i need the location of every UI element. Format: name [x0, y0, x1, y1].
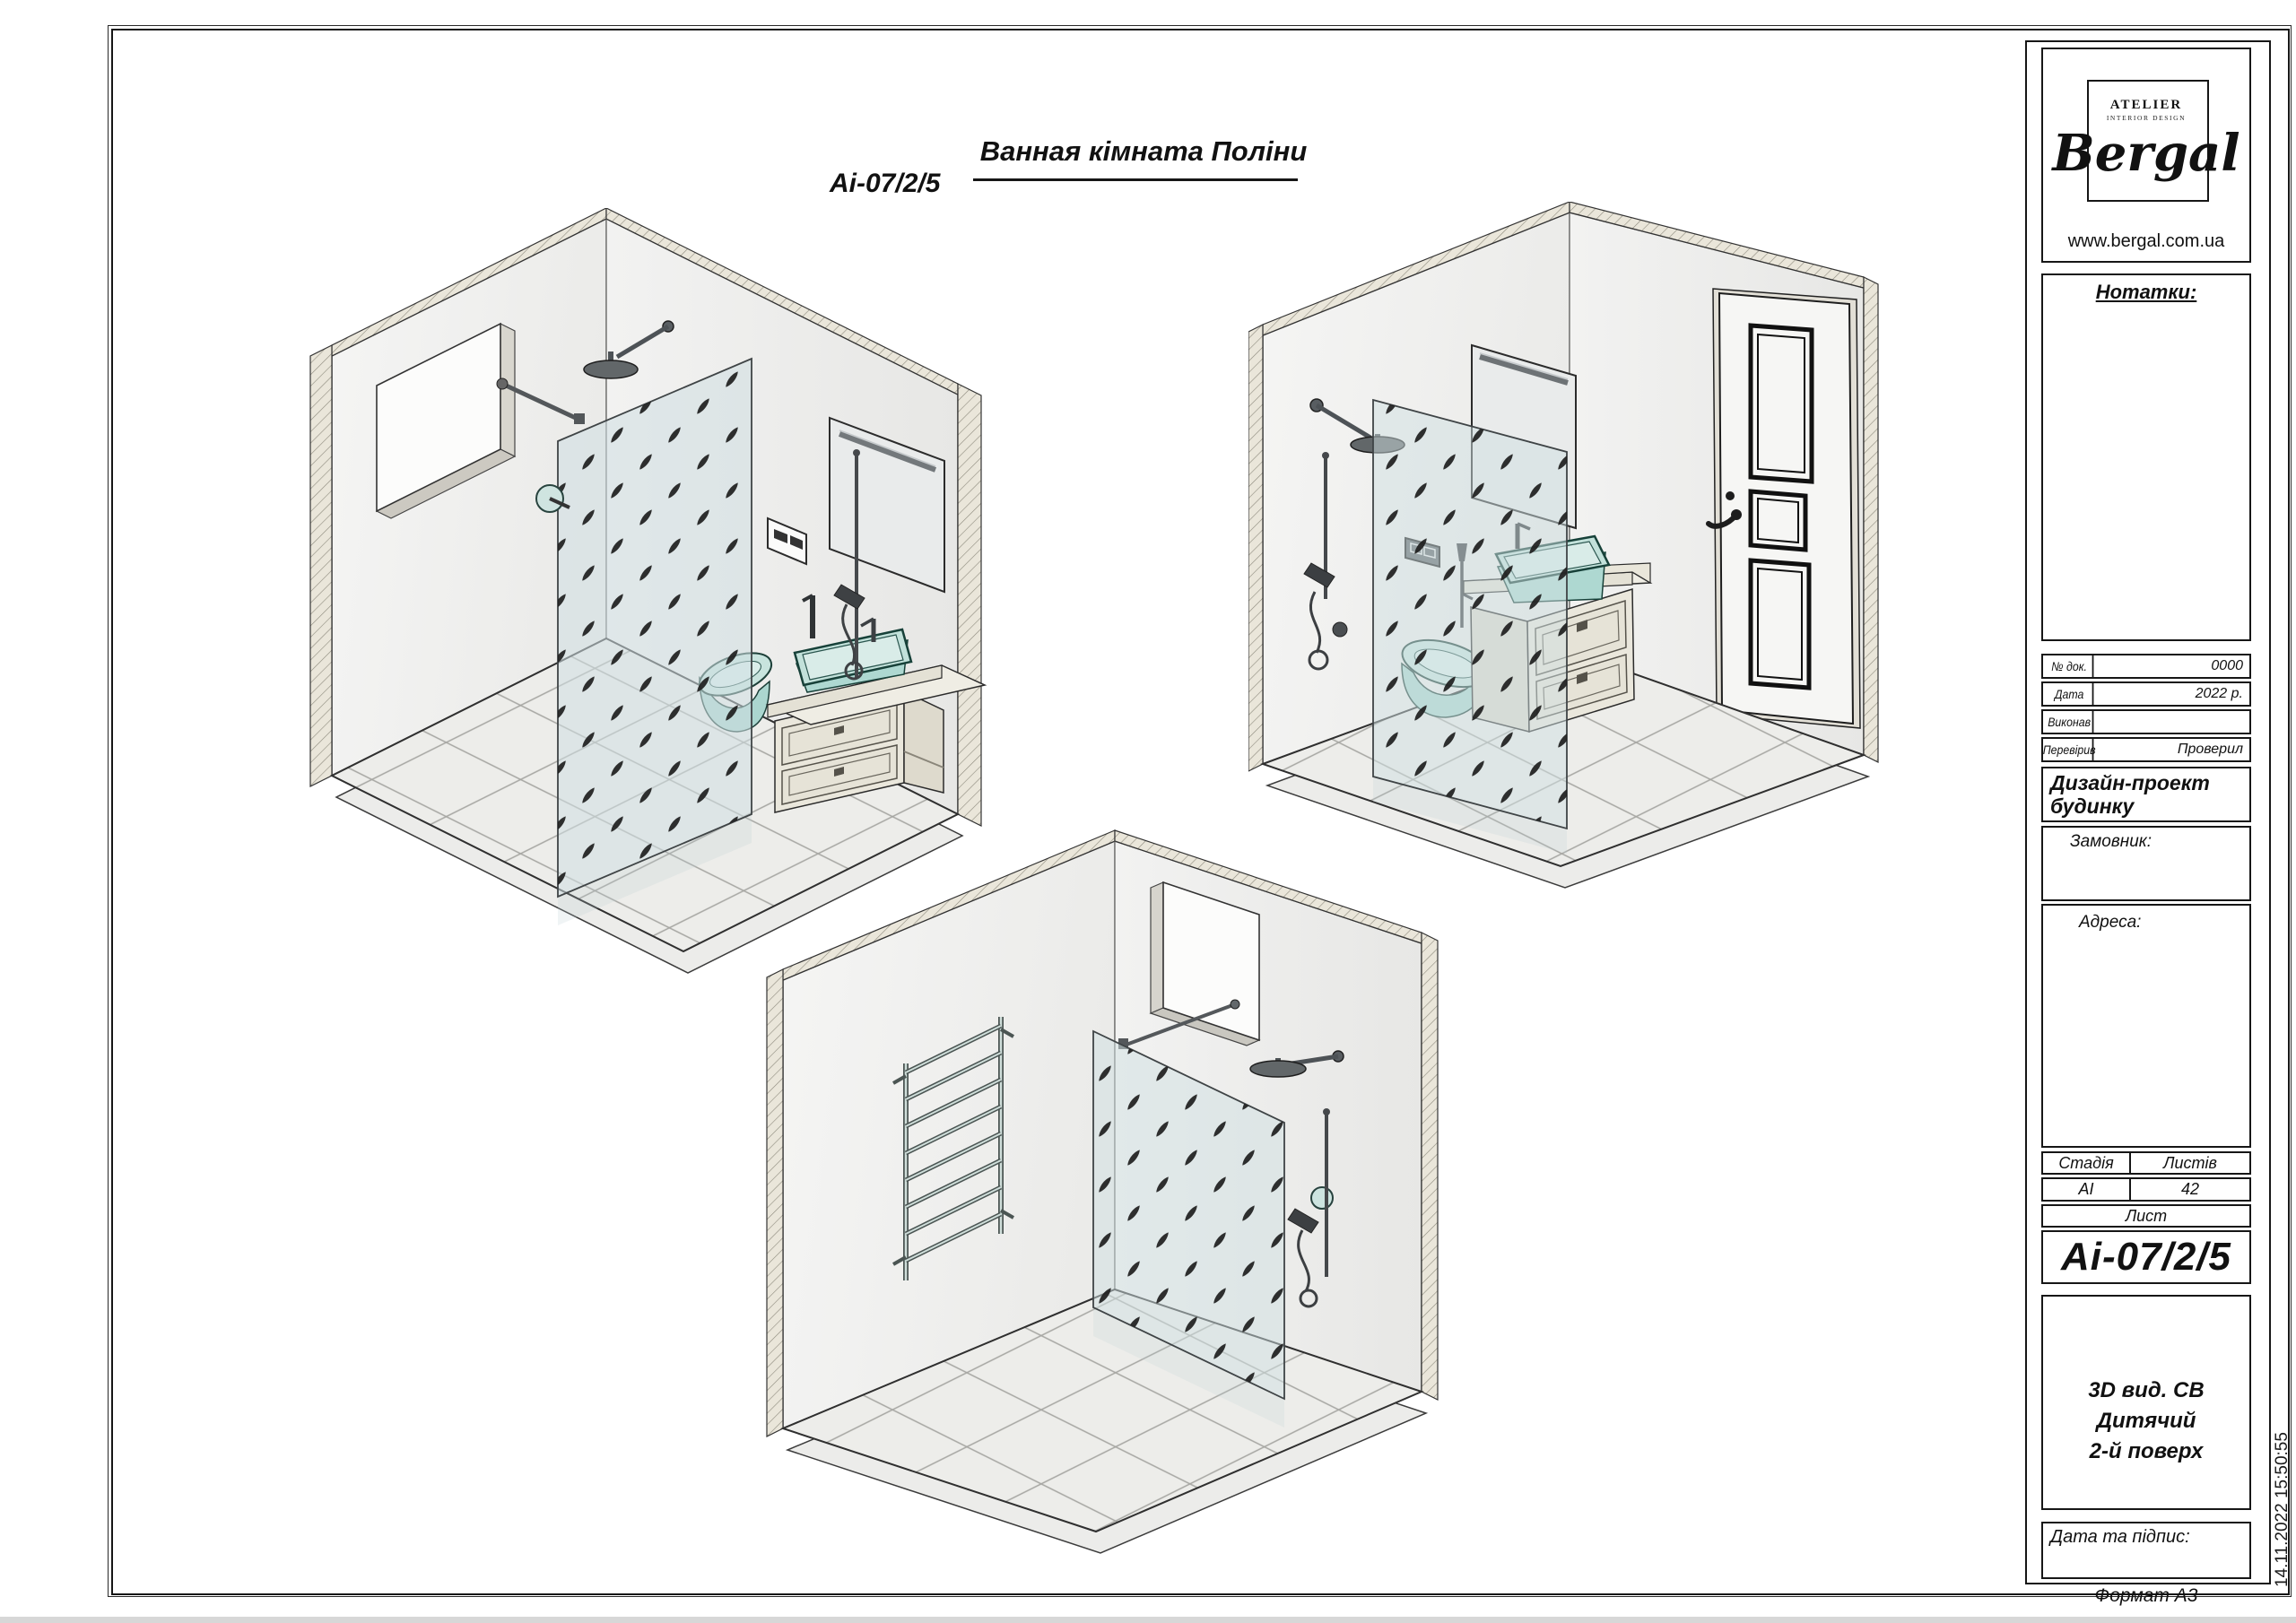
window-bottom-edge	[0, 1617, 2296, 1623]
view-title-box: 3D вид. СВ Дитячий 2-й поверх	[2041, 1295, 2251, 1510]
title-underline	[973, 178, 1298, 181]
header-project-code: Аі-07/2/5	[830, 169, 940, 199]
doc-row-label: Перевірив	[2047, 739, 2094, 760]
stage-value: АІ	[2043, 1179, 2131, 1200]
stage-values-row: АІ 42	[2041, 1177, 2251, 1202]
sheet-border-inner	[111, 29, 2290, 1595]
sheet-code-box: Аі-07/2/5	[2041, 1230, 2251, 1284]
project-title-line2: будинку	[2050, 794, 2249, 818]
stage-header-row: Стадія Листів	[2041, 1151, 2251, 1175]
client-label: Замовник:	[2070, 832, 2152, 852]
page-title: Ванная кімната Поліни	[933, 135, 1354, 168]
address-box: Адреса:	[2041, 904, 2251, 1148]
signature-box: Дата та підпис:	[2041, 1522, 2251, 1579]
brand-website: www.bergal.com.ua	[2043, 231, 2249, 252]
doc-row-checked: Перевірив Проверил	[2041, 737, 2251, 762]
sheet-code: Аі-07/2/5	[2061, 1235, 2231, 1280]
brand-logo-box: ATELIER INTERIOR DESIGN Bergal www.berga…	[2041, 48, 2251, 263]
stage-label: Стадія	[2043, 1153, 2131, 1173]
brand-name: Bergal	[2038, 126, 2255, 180]
notes-box: Нотатки:	[2041, 273, 2251, 641]
doc-row-number: № док. 0000	[2041, 654, 2251, 679]
brand-atelier-label: ATELIER	[2043, 98, 2249, 113]
doc-row-author: Виконав	[2041, 709, 2251, 734]
doc-row-label: Дата	[2047, 683, 2094, 705]
doc-row-value: 2022 р.	[2097, 686, 2249, 702]
signature-label: Дата та підпис:	[2050, 1527, 2190, 1548]
client-box: Замовник:	[2041, 826, 2251, 901]
print-timestamp: 14.11.2022 15:50:55	[2273, 1381, 2292, 1587]
view-title-line2: 2-й поверх	[2043, 1436, 2249, 1467]
sheet-label: Лист	[2126, 1207, 2167, 1226]
address-label: Адреса:	[2079, 913, 2141, 933]
sheet-label-box: Лист	[2041, 1204, 2251, 1228]
brand-subtitle-label: INTERIOR DESIGN	[2043, 114, 2249, 122]
doc-row-value: Проверил	[2097, 742, 2249, 758]
doc-row-label: Виконав	[2047, 711, 2094, 733]
drawing-sheet: Аі-07/2/5 Ванная кімната Поліни ATELIER …	[0, 0, 2296, 1623]
doc-row-value: 0000	[2097, 658, 2249, 674]
sheets-value: 42	[2131, 1179, 2249, 1200]
doc-row-label: № док.	[2047, 655, 2094, 677]
project-title-line1: Дизайн-проект	[2050, 771, 2249, 794]
doc-row-date: Дата 2022 р.	[2041, 681, 2251, 707]
format-label: Формат А3	[2025, 1585, 2267, 1607]
notes-label: Нотатки:	[2043, 281, 2249, 304]
sheets-label: Листів	[2131, 1153, 2249, 1173]
view-title-line1: 3D вид. СВ Дитячий	[2043, 1376, 2249, 1436]
project-title-box: Дизайн-проект будинку	[2041, 767, 2251, 822]
title-block: ATELIER INTERIOR DESIGN Bergal www.berga…	[2025, 40, 2271, 1584]
